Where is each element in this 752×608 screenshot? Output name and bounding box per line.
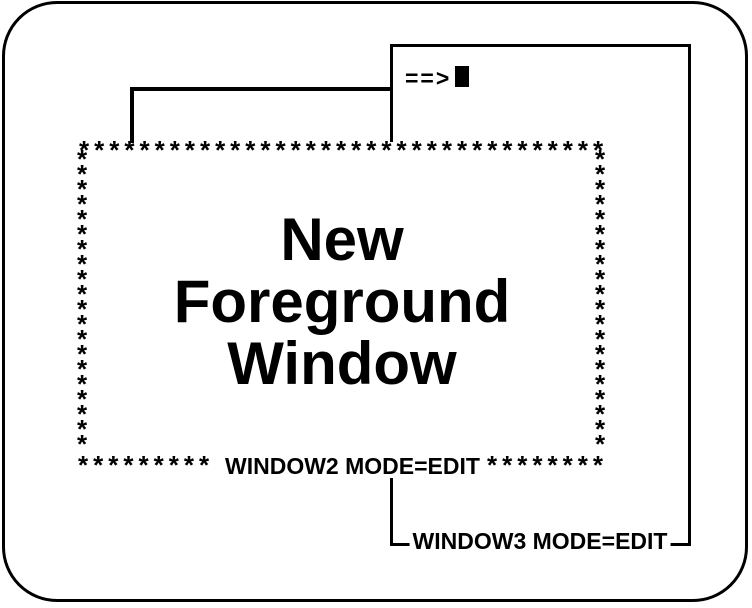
window2-bottom-left-asterisks: *********	[78, 452, 214, 478]
window2-title: New Foreground Window	[78, 209, 606, 395]
window3-top-border	[390, 44, 691, 47]
window3-left-border-upper	[390, 44, 393, 142]
diagram-canvas: ==> *********************************** …	[0, 0, 752, 608]
command-prompt: ==>	[405, 65, 469, 91]
window3-left-border-lower	[390, 478, 393, 546]
window2-top-border: ***********************************	[79, 137, 608, 163]
prompt-arrow: ==>	[405, 65, 451, 91]
window2-title-line-2: Foreground	[78, 271, 606, 333]
window2-mode-label: WINDOW2 MODE=EDIT	[225, 453, 480, 479]
connector-horizontal-line	[130, 87, 392, 91]
window2-bottom-border: ********* WINDOW2 MODE=EDIT ********	[78, 449, 606, 479]
window3-mode-label: WINDOW3 MODE=EDIT	[410, 528, 671, 554]
window2-bottom-right-asterisks: ********	[487, 452, 608, 478]
window2-title-line-3: Window	[78, 333, 606, 395]
window3-right-border	[688, 44, 691, 546]
text-cursor-block	[455, 66, 469, 87]
window2-title-line-1: New	[78, 209, 606, 271]
